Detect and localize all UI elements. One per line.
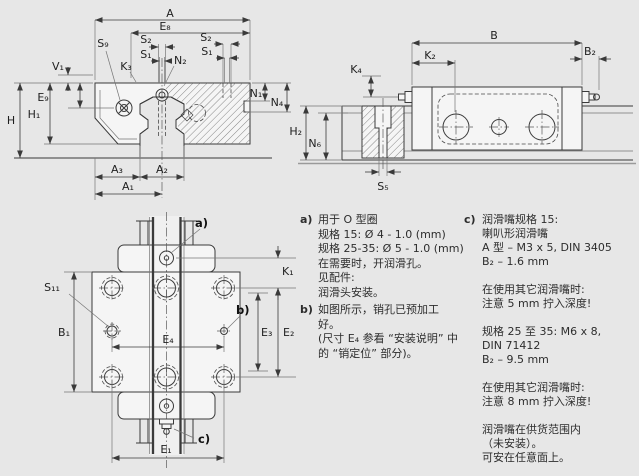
side-grease-nipple-left <box>399 92 413 103</box>
dim-label-A: A <box>166 7 174 20</box>
dim-label-H: H <box>7 114 15 127</box>
side-rail-section-block <box>362 98 404 170</box>
dim-label-B: B <box>490 29 498 42</box>
note-c: c) 润滑嘴规格 15: 喇叭形润滑嘴 A 型 – M3 x 5, DIN 34… <box>464 213 612 465</box>
dim-label-H1: H₁ <box>28 108 41 121</box>
dim-label-E1: E₁ <box>160 443 171 456</box>
dim-label-N4: N₄ <box>271 96 284 109</box>
dim-label-E9: E₉ <box>37 91 48 104</box>
callout-c: c) <box>198 432 210 446</box>
note-a: a) 用于 O 型圈 规格 15: Ø 4 - 1.0 (mm) 规格 25-3… <box>300 213 464 300</box>
note-a-text: 用于 O 型圈 规格 15: Ø 4 - 1.0 (mm) 规格 25-35: … <box>318 213 464 300</box>
catalog-drawing-page: A E₈ S₂ S₁ N₂ S₂ S₁ S₉ K₃ V₁ E₉ H H₁ N₁ … <box>0 0 639 476</box>
dim-label-A3: A₃ <box>111 163 123 176</box>
side-view: B K₂ B₂ K₄ H₂ N₆ S₅ <box>289 29 636 193</box>
note-c-tag: c) <box>464 213 478 465</box>
dim-label-K1: K₁ <box>282 265 294 278</box>
dim-label-H2: H₂ <box>289 125 302 138</box>
dim-label-S1-right: S₁ <box>201 45 212 58</box>
front-right-step <box>244 101 250 112</box>
note-b-tag: b) <box>300 303 314 361</box>
dim-label-E4: E₄ <box>162 333 174 346</box>
note-b: b) 如图所示，销孔已预加工 好。 (尺寸 E₄ 参看 “安装说明” 中 的 “… <box>300 303 458 361</box>
dim-label-E3: E₃ <box>261 326 272 339</box>
dim-label-N6: N₆ <box>308 137 321 150</box>
dim-label-S9: S₉ <box>97 37 108 50</box>
dim-label-B1: B₁ <box>58 326 70 339</box>
dim-label-S11: S₁₁ <box>44 281 60 294</box>
side-carriage <box>412 87 582 150</box>
dim-label-S2-right: S₂ <box>200 31 211 44</box>
note-a-tag: a) <box>300 213 314 300</box>
dim-label-K2: K₂ <box>424 49 436 62</box>
dim-label-S5: S₅ <box>377 180 388 193</box>
dim-label-A2: A₂ <box>156 163 168 176</box>
dim-label-V1: V₁ <box>52 60 64 73</box>
callout-a: a) <box>195 216 208 230</box>
front-section-hatch <box>166 83 250 144</box>
dim-label-N2: N₂ <box>174 54 187 67</box>
plan-view: K₁ S₁₁ B₁ E₃ E₂ E₄ E₁ a) b) c) <box>44 212 296 468</box>
dim-label-K4: K₄ <box>350 63 362 76</box>
note-c-text: 润滑嘴规格 15: 喇叭形润滑嘴 A 型 – M3 x 5, DIN 3405 … <box>482 213 612 465</box>
dim-label-E2: E₂ <box>283 326 294 339</box>
callout-b: b) <box>236 303 250 317</box>
dim-label-B2: B₂ <box>584 45 596 58</box>
dim-label-N1: N₁ <box>250 87 263 100</box>
side-grease-nipple-right <box>582 92 600 103</box>
front-view: A E₈ S₂ S₁ N₂ S₂ S₁ S₉ K₃ V₁ E₉ H H₁ N₁ … <box>7 7 291 200</box>
dim-label-E8: E₈ <box>159 20 171 33</box>
plan-carriage-body <box>92 272 240 392</box>
note-b-text: 如图所示，销孔已预加工 好。 (尺寸 E₄ 参看 “安装说明” 中 的 “销定位… <box>318 303 458 361</box>
dim-label-S2-left: S₂ <box>140 33 151 46</box>
dim-label-K3: K₃ <box>120 60 132 73</box>
dim-label-A1: A₁ <box>122 180 134 193</box>
dim-label-S1-left: S₁ <box>140 48 151 61</box>
